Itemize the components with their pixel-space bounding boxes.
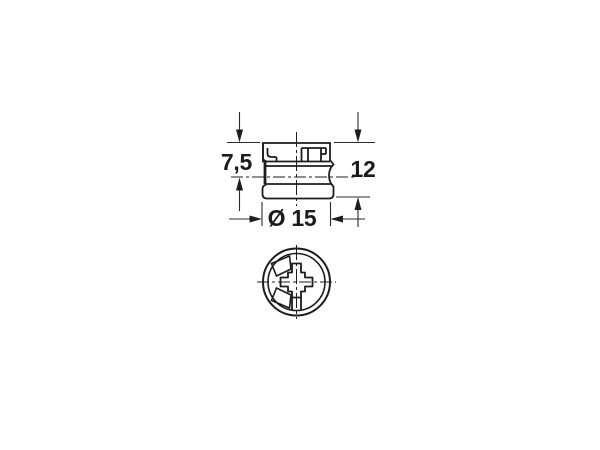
bolt-slot xyxy=(302,148,327,162)
dimension-label-overall-height: 12 xyxy=(344,157,382,181)
housing-outline xyxy=(263,143,334,199)
arrowhead-12-up xyxy=(355,197,362,210)
technical-drawing-page: 7,5 12 Ø 15 xyxy=(0,0,600,450)
arrowhead-75-up xyxy=(236,178,243,191)
arrowhead-12-down xyxy=(355,130,362,143)
dimension-label-diameter: Ø 15 xyxy=(260,206,324,230)
flange-lip-inner xyxy=(268,148,277,157)
dimension-label-flange-to-axis: 7,5 xyxy=(206,150,252,174)
side-view xyxy=(263,143,334,199)
arrowhead-dia-left xyxy=(331,216,344,223)
arrowhead-75-down xyxy=(236,130,243,143)
flange-lip-outer xyxy=(263,143,277,162)
